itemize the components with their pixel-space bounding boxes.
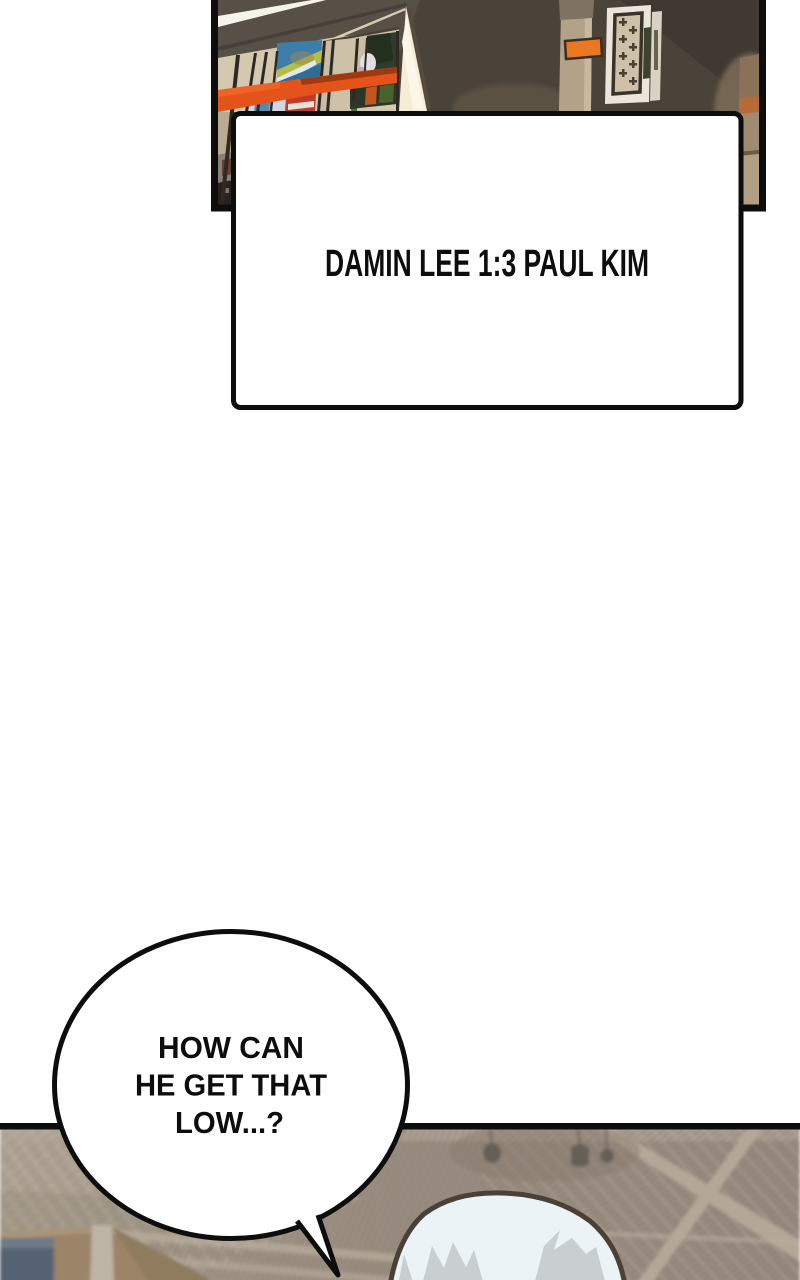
svg-text:HE GET THAT: HE GET THAT bbox=[135, 1068, 327, 1103]
svg-text:DAMIN LEE 1:3 PAUL KIM: DAMIN LEE 1:3 PAUL KIM bbox=[325, 243, 649, 285]
svg-text:HOW CAN: HOW CAN bbox=[158, 1030, 304, 1065]
svg-text:LOW...?: LOW...? bbox=[175, 1105, 284, 1140]
